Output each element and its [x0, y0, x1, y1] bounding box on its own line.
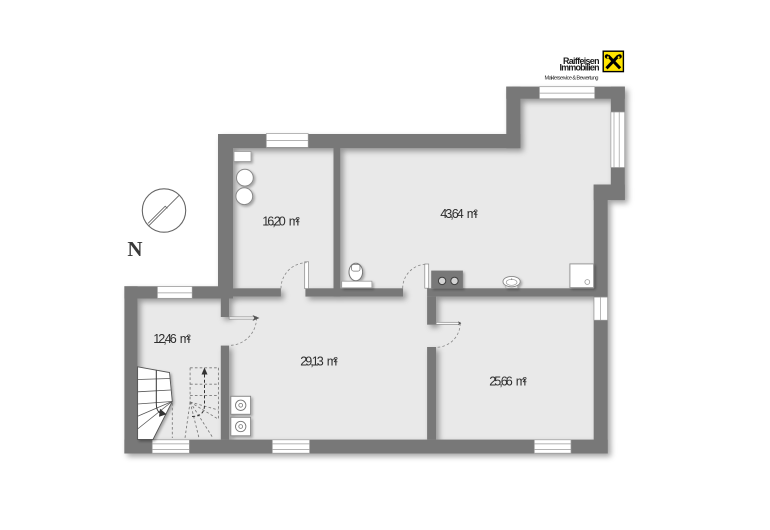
svg-text:m²: m² — [327, 354, 338, 368]
svg-text:m²: m² — [289, 215, 300, 229]
svg-text:N: N — [127, 237, 142, 261]
svg-text:29,13: 29,13 — [300, 354, 324, 368]
svg-text:Maklerservice & Bewertung: Maklerservice & Bewertung — [545, 75, 599, 81]
svg-text:16,20: 16,20 — [262, 215, 286, 229]
svg-text:Immobilien: Immobilien — [560, 62, 600, 72]
svg-text:m²: m² — [180, 332, 191, 346]
svg-text:12,46: 12,46 — [153, 332, 177, 346]
svg-text:43,64: 43,64 — [440, 207, 464, 221]
svg-text:m²: m² — [516, 375, 527, 389]
svg-text:25,66: 25,66 — [489, 375, 513, 389]
svg-text:m²: m² — [467, 207, 478, 221]
